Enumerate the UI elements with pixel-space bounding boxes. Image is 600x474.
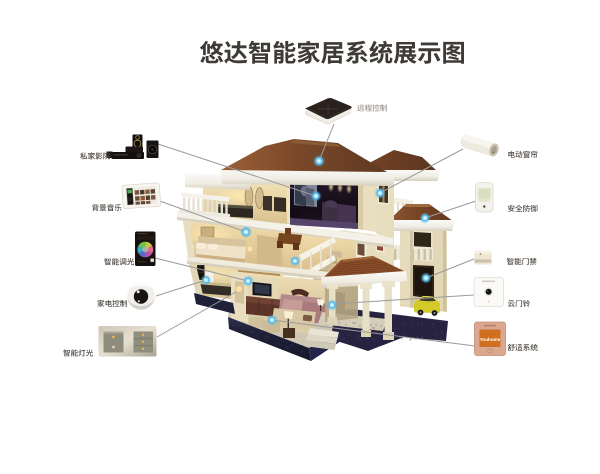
svg-text:Youhome: Youhome [480,337,501,342]
